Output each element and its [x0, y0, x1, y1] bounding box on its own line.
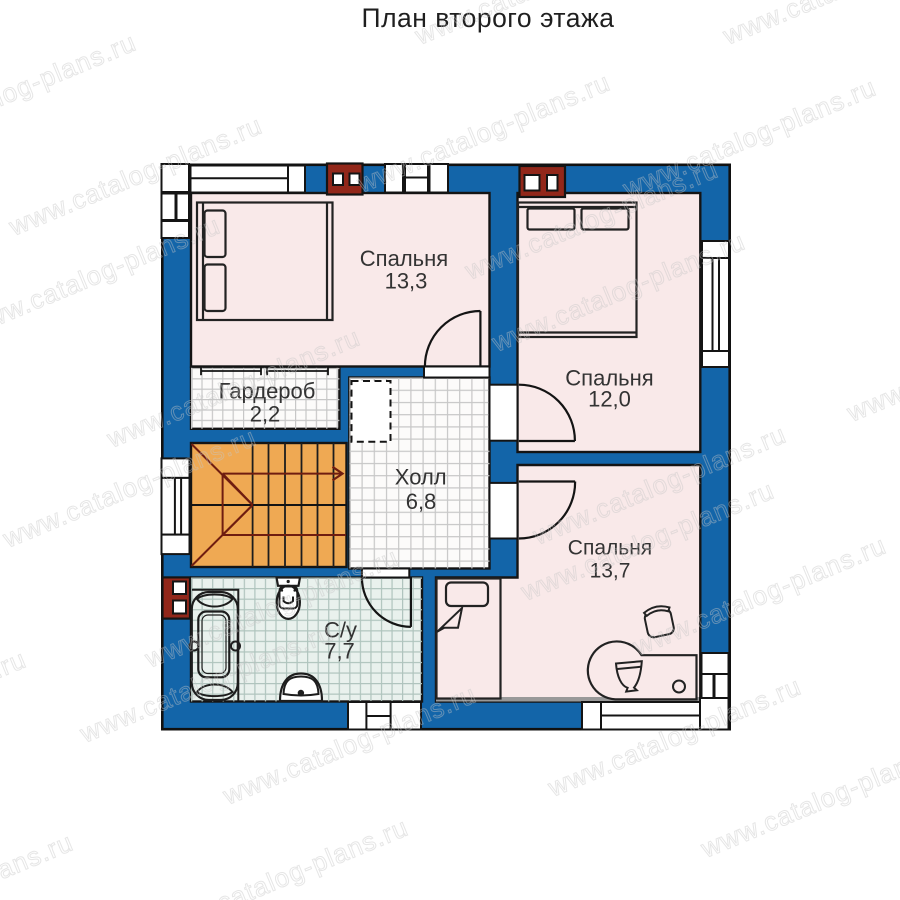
svg-text:2,2: 2,2: [250, 402, 281, 427]
svg-text:Холл: Холл: [395, 465, 447, 490]
svg-text:13,3: 13,3: [385, 269, 428, 294]
svg-text:12,0: 12,0: [588, 387, 631, 412]
svg-text:Спальня: Спальня: [360, 246, 448, 271]
svg-text:6,8: 6,8: [406, 489, 437, 514]
